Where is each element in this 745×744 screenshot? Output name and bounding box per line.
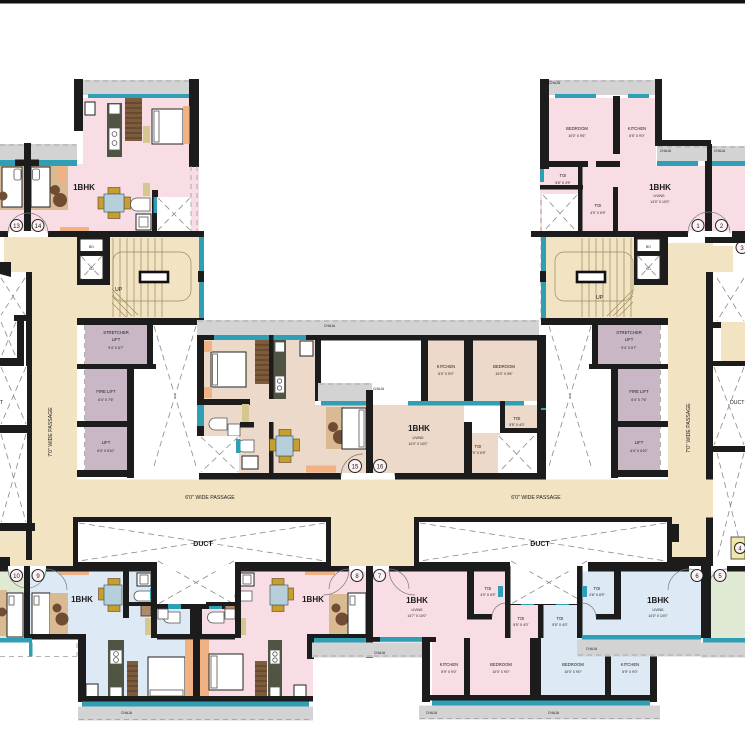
svg-text:14: 14 [35,224,42,230]
svg-text:LIVING: LIVING [652,608,663,612]
svg-text:6'4" X 6'10": 6'4" X 6'10" [630,449,648,453]
svg-text:FIRE LIFT: FIRE LIFT [96,389,116,394]
svg-text:CHAJA: CHAJA [548,711,560,715]
svg-text:DUCT: DUCT [193,541,213,548]
svg-text:7'0" WIDE PASSAGE: 7'0" WIDE PASSAGE [686,403,692,453]
svg-text:BEDROOM: BEDROOM [490,662,512,667]
svg-text:6'5" X 9'0": 6'5" X 9'0" [629,134,645,138]
svg-text:LIVING: LIVING [412,436,423,440]
svg-text:KD: KD [646,267,651,271]
svg-text:STRETCHER: STRETCHER [616,330,642,335]
svg-text:KITCHEN: KITCHEN [440,662,458,667]
svg-text:CHAJA: CHAJA [714,149,726,153]
svg-text:FIRE LIFT: FIRE LIFT [629,389,649,394]
svg-text:UP: UP [596,295,604,301]
svg-text:5'9" X 9'0": 5'9" X 9'0" [622,670,638,674]
svg-text:TOI: TOI [595,203,602,208]
svg-text:10'0" X 9'0": 10'0" X 9'0" [492,670,510,674]
svg-text:BEDROOM: BEDROOM [566,126,588,131]
svg-text:10'0" X 9'6": 10'0" X 9'6" [495,372,513,376]
svg-text:14'0" X 10'0": 14'0" X 10'0" [408,442,428,446]
svg-text:10'0" X 9'6": 10'0" X 9'6" [568,134,586,138]
svg-text:LIFT: LIFT [635,440,644,445]
svg-text:5'9" X 9'0": 5'9" X 9'0" [441,670,457,674]
svg-text:TOI: TOI [475,444,482,449]
svg-text:DUCT: DUCT [530,541,550,548]
svg-text:KITCHEN: KITCHEN [628,126,646,131]
svg-text:BEDROOM: BEDROOM [493,364,515,369]
svg-text:6'0" X 9'0": 6'0" X 9'0" [438,372,454,376]
svg-text:14'0" X 10'0": 14'0" X 10'0" [648,614,668,618]
svg-text:10'0" X 9'0": 10'0" X 9'0" [564,670,582,674]
svg-text:CHAJA: CHAJA [549,81,561,85]
svg-text:5'5" X 4'0": 5'5" X 4'0" [509,423,525,427]
svg-text:TOI: TOI [560,173,567,178]
svg-text:10: 10 [13,574,20,580]
svg-text:CHAJA: CHAJA [586,647,598,651]
svg-text:1BHK: 1BHK [649,183,671,192]
svg-text:4'0" X 6'9": 4'0" X 6'9" [590,211,606,215]
svg-text:TOI: TOI [485,586,492,591]
svg-text:LIVING: LIVING [411,608,422,612]
svg-text:BEDROOM: BEDROOM [562,662,584,667]
svg-text:CHAJA: CHAJA [660,149,672,153]
svg-text:TOI: TOI [557,616,564,621]
svg-text:1BHK: 1BHK [406,596,428,605]
svg-text:UP: UP [115,287,123,293]
svg-text:6'4" X 6'10": 6'4" X 6'10" [97,449,115,453]
svg-text:1BHK: 1BHK [73,183,95,192]
svg-text:4'6" X 6'9": 4'6" X 6'9" [589,593,605,597]
svg-text:5'5" X 4'0": 5'5" X 4'0" [552,623,568,627]
svg-text:4'0" X 6'9": 4'0" X 6'9" [470,451,486,455]
svg-text:5'5" X 4'0": 5'5" X 4'0" [513,623,529,627]
svg-text:BO: BO [646,245,651,249]
svg-text:1BHK: 1BHK [302,595,324,604]
svg-text:14'7" X 10'0": 14'7" X 10'0" [407,614,427,618]
svg-text:LIVING: LIVING [653,194,664,198]
svg-text:6'4" X 7'6": 6'4" X 7'6" [98,398,114,402]
svg-text:LIFT: LIFT [112,337,121,342]
svg-text:KITCHEN: KITCHEN [437,364,455,369]
svg-text:6'0" WIDE PASSAGE: 6'0" WIDE PASSAGE [185,495,235,501]
svg-text:5'6" X 4'9": 5'6" X 4'9" [555,181,571,185]
svg-text:6'4" X 7'6": 6'4" X 7'6" [631,398,647,402]
svg-text:DUCT: DUCT [730,400,745,406]
svg-text:STRETCHER: STRETCHER [103,330,129,335]
svg-text:LIFT: LIFT [625,337,634,342]
svg-text:1BHK: 1BHK [408,424,430,433]
svg-text:1BHK: 1BHK [71,595,93,604]
svg-text:9'4" X 6'7": 9'4" X 6'7" [108,346,124,350]
svg-text:TOI: TOI [594,586,601,591]
svg-text:TOI: TOI [514,416,521,421]
svg-text:BO: BO [89,245,94,249]
svg-text:CHAJA: CHAJA [373,387,385,391]
svg-text:CHAJA: CHAJA [121,711,133,715]
svg-text:CHAJA: CHAJA [324,324,336,328]
svg-text:CHAJA: CHAJA [374,651,386,655]
svg-text:KITCHEN: KITCHEN [621,662,639,667]
svg-text:KD: KD [89,267,94,271]
svg-text:1BHK: 1BHK [647,596,669,605]
svg-text:9'4" X 6'7": 9'4" X 6'7" [621,346,637,350]
svg-text:LIFT: LIFT [102,440,111,445]
svg-text:4'0" X 6'9": 4'0" X 6'9" [480,593,496,597]
svg-text:7'0" WIDE PASSAGE: 7'0" WIDE PASSAGE [48,407,54,457]
svg-text:13: 13 [13,224,20,230]
svg-text:14'0" X 10'0": 14'0" X 10'0" [650,200,670,204]
svg-text:16: 16 [377,465,384,471]
svg-text:6'0" WIDE PASSAGE: 6'0" WIDE PASSAGE [511,495,561,501]
svg-text:15: 15 [352,465,359,471]
svg-text:CHAJA: CHAJA [426,711,438,715]
svg-text:TOI: TOI [518,616,525,621]
